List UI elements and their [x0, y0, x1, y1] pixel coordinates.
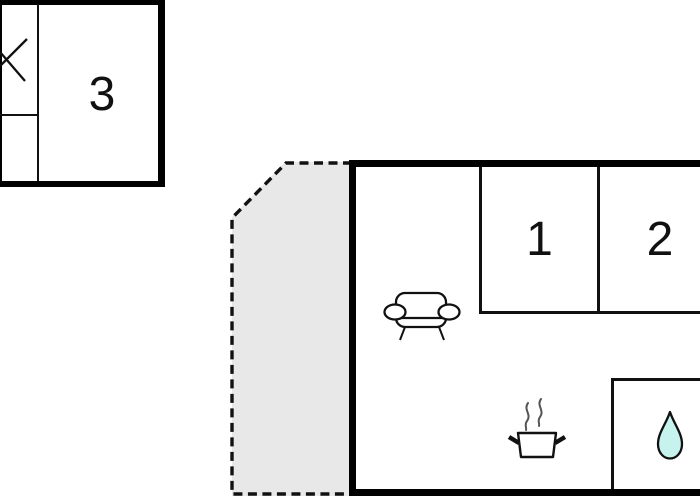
- main-wall-top: [349, 160, 700, 167]
- window-cross-icon: [0, 30, 30, 86]
- terrace-area: [225, 155, 355, 500]
- room1-label: 1: [482, 167, 597, 313]
- sofa-icon: [383, 289, 465, 345]
- floorplan-canvas: 3 1 2: [0, 0, 700, 500]
- annex-inner-wall-vertical: [37, 4, 40, 181]
- annex-wall-top: [0, 0, 165, 5]
- terrace-fill: [232, 162, 352, 496]
- bathroom-wall-left: [611, 378, 614, 489]
- steam-icon: [539, 399, 542, 426]
- annex-wall-left: [0, 0, 2, 187]
- annex-wall-bottom: [0, 181, 165, 188]
- annex-room-label: 3: [72, 66, 132, 124]
- steam-icon: [526, 403, 529, 430]
- water-drop-icon: [652, 408, 688, 464]
- main-wall-bottom: [349, 489, 700, 496]
- annex-wall-right: [158, 0, 165, 187]
- main-wall-left: [349, 160, 356, 496]
- bathroom-wall-top: [611, 378, 700, 381]
- room2-label: 2: [600, 167, 700, 313]
- annex-inner-wall-horizontal: [0, 114, 39, 117]
- cooking-pot-icon: [503, 396, 571, 462]
